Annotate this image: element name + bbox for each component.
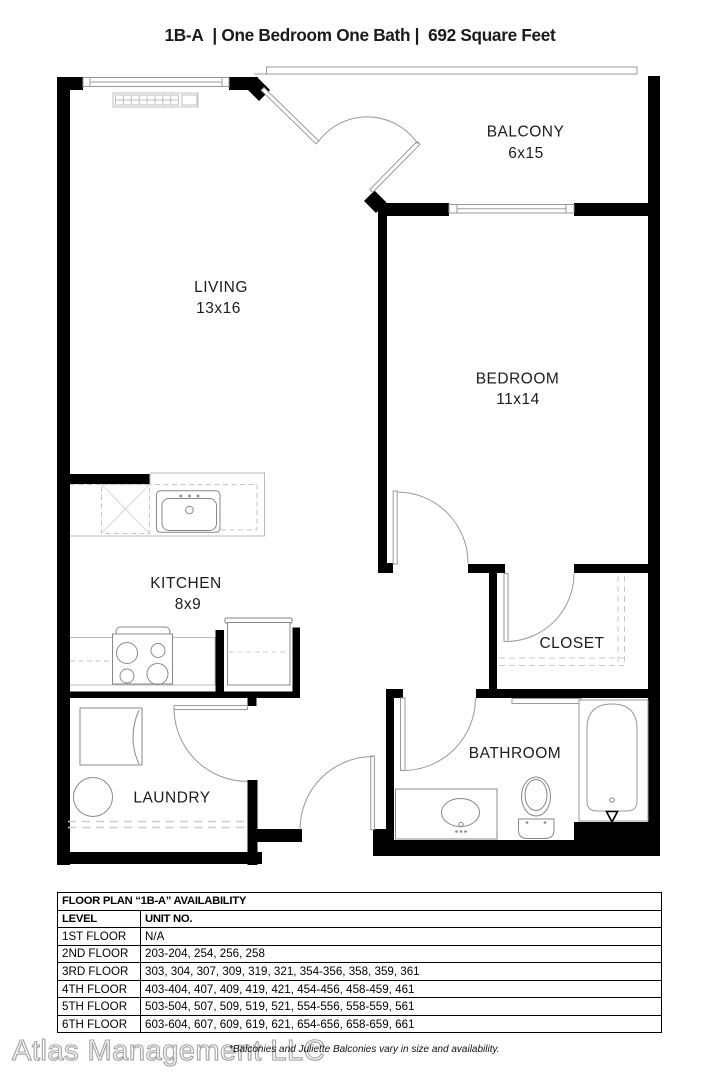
svg-text:8x9: 8x9 bbox=[175, 596, 202, 613]
svg-text:LIVING: LIVING bbox=[194, 279, 248, 296]
svg-text:CLOSET: CLOSET bbox=[539, 635, 604, 652]
svg-text:BEDROOM: BEDROOM bbox=[476, 371, 560, 388]
svg-text:13x16: 13x16 bbox=[196, 300, 241, 317]
svg-text:6x15: 6x15 bbox=[508, 145, 544, 162]
svg-text:BATHROOM: BATHROOM bbox=[469, 745, 561, 762]
svg-text:11x14: 11x14 bbox=[496, 391, 540, 408]
svg-text:KITCHEN: KITCHEN bbox=[150, 575, 222, 592]
svg-text:LAUNDRY: LAUNDRY bbox=[133, 790, 210, 807]
svg-text:BALCONY: BALCONY bbox=[487, 124, 565, 141]
